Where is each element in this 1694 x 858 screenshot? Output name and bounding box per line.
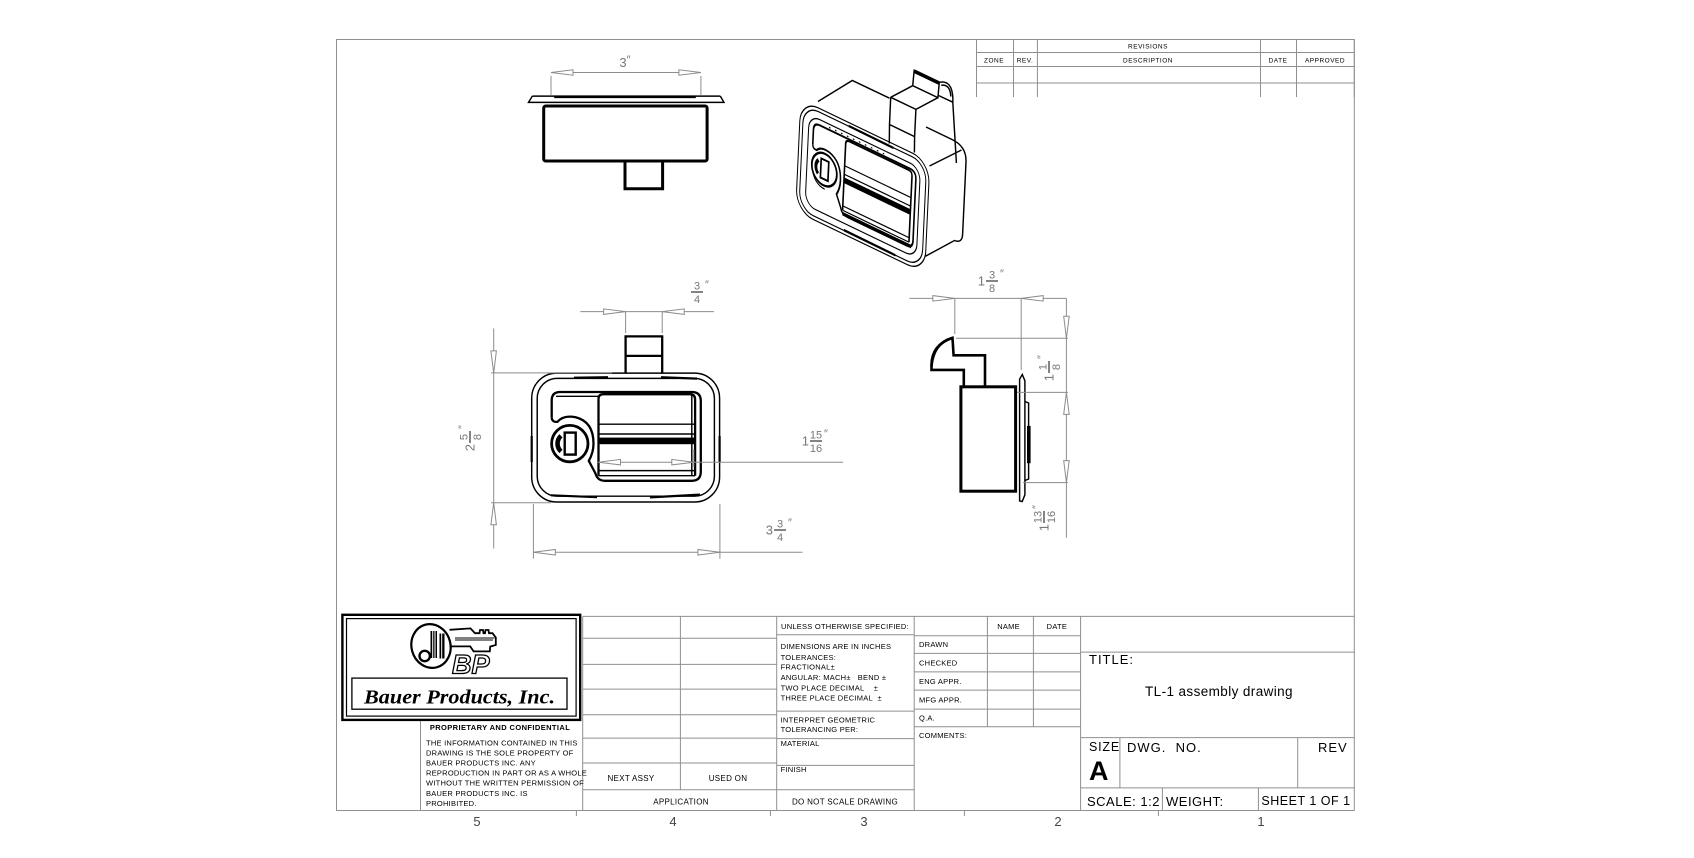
- svg-text:REV.: REV.: [1017, 58, 1034, 65]
- svg-text:1: 1: [802, 434, 809, 449]
- svg-text:FRACTIONAL±: FRACTIONAL±: [781, 663, 835, 672]
- svg-text:PROHIBITED.: PROHIBITED.: [426, 799, 477, 808]
- svg-text:SCALE: 1:2: SCALE: 1:2: [1087, 794, 1160, 809]
- svg-text:″: ″: [824, 428, 828, 440]
- svg-text:3: 3: [766, 523, 773, 538]
- svg-text:SIZE: SIZE: [1089, 740, 1120, 754]
- svg-text:8: 8: [472, 434, 484, 440]
- svg-text:THREE PLACE DECIMAL ±: THREE PLACE DECIMAL ±: [781, 694, 882, 703]
- svg-text:WITHOUT THE WRITTEN PERMISSION: WITHOUT THE WRITTEN PERMISSION OF: [426, 779, 584, 788]
- svg-text:1: 1: [1037, 524, 1052, 531]
- svg-text:″: ″: [788, 517, 792, 529]
- svg-text:WEIGHT:: WEIGHT:: [1166, 794, 1224, 809]
- svg-text:CHECKED: CHECKED: [919, 659, 958, 668]
- svg-text:8: 8: [989, 283, 995, 295]
- svg-text:ANGULAR: MACH± BEND ±: ANGULAR: MACH± BEND ±: [781, 673, 887, 682]
- svg-text:16: 16: [810, 443, 822, 455]
- svg-text:4: 4: [777, 532, 783, 544]
- svg-text:DWG. NO.: DWG. NO.: [1127, 740, 1202, 755]
- svg-text:15: 15: [810, 430, 822, 442]
- svg-text:3: 3: [694, 281, 700, 293]
- svg-text:TOLERANCING PER:: TOLERANCING PER:: [781, 725, 859, 734]
- svg-text:Q.A.: Q.A.: [919, 714, 935, 723]
- svg-text:5: 5: [473, 814, 480, 829]
- svg-text:TITLE:: TITLE:: [1089, 652, 1134, 667]
- svg-text:″: ″: [457, 425, 469, 429]
- svg-text:REV: REV: [1318, 740, 1348, 755]
- svg-text:DRAWING IS THE SOLE PROPERTY O: DRAWING IS THE SOLE PROPERTY OF: [426, 749, 574, 758]
- svg-text:2: 2: [463, 444, 478, 451]
- svg-text:MFG APPR.: MFG APPR.: [919, 696, 962, 705]
- svg-text:3: 3: [777, 519, 783, 531]
- svg-text:8: 8: [1051, 364, 1063, 370]
- svg-text:DRAWN: DRAWN: [919, 640, 948, 649]
- svg-text:16: 16: [1046, 511, 1058, 523]
- svg-text:BP: BP: [452, 650, 490, 680]
- svg-text:UNLESS OTHERWISE SPECIFIED:: UNLESS OTHERWISE SPECIFIED:: [781, 622, 909, 631]
- svg-text:1: 1: [978, 274, 985, 289]
- svg-text:″: ″: [1031, 505, 1043, 509]
- svg-text:NAME: NAME: [997, 622, 1020, 631]
- svg-text:USED ON: USED ON: [709, 774, 748, 783]
- svg-text:PROPRIETARY AND CONFIDENTIAL: PROPRIETARY AND CONFIDENTIAL: [430, 723, 570, 732]
- svg-text:3: 3: [860, 814, 867, 829]
- svg-text:MATERIAL: MATERIAL: [781, 739, 820, 748]
- svg-text:ENG APPR.: ENG APPR.: [919, 677, 962, 686]
- svg-text:COMMENTS:: COMMENTS:: [919, 731, 967, 740]
- svg-text:FINISH: FINISH: [781, 765, 807, 774]
- svg-text:DO NOT SCALE DRAWING: DO NOT SCALE DRAWING: [792, 798, 898, 807]
- svg-text:Bauer Products, Inc.: Bauer Products, Inc.: [363, 687, 555, 709]
- svg-text:DESCRIPTION: DESCRIPTION: [1123, 58, 1173, 65]
- svg-text:13: 13: [1033, 511, 1045, 523]
- svg-text:DATE: DATE: [1047, 622, 1067, 631]
- svg-text:DIMENSIONS ARE IN INCHES: DIMENSIONS ARE IN INCHES: [781, 642, 892, 651]
- svg-text:ZONE: ZONE: [984, 58, 1004, 65]
- svg-text:″: ″: [1000, 268, 1004, 280]
- svg-text:SHEET 1 OF 1: SHEET 1 OF 1: [1261, 794, 1350, 808]
- svg-text:REVISIONS: REVISIONS: [1128, 44, 1168, 51]
- svg-text:2: 2: [1054, 814, 1061, 829]
- svg-text:NEXT ASSY: NEXT ASSY: [607, 774, 654, 783]
- svg-text:A: A: [1089, 756, 1109, 786]
- svg-text:1: 1: [1038, 364, 1050, 370]
- svg-text:TL-1 assembly drawing: TL-1 assembly drawing: [1145, 684, 1293, 699]
- svg-text:1: 1: [1257, 814, 1264, 829]
- svg-text:1: 1: [1042, 374, 1057, 381]
- svg-text:TOLERANCES:: TOLERANCES:: [781, 653, 837, 662]
- svg-text:TWO PLACE DECIMAL ±: TWO PLACE DECIMAL ±: [781, 683, 879, 692]
- svg-text:APPLICATION: APPLICATION: [653, 798, 709, 807]
- svg-text:4: 4: [694, 294, 700, 306]
- svg-text:BAUER PRODUCTS INC. IS: BAUER PRODUCTS INC. IS: [426, 789, 528, 798]
- svg-text:BAUER PRODUCTS INC. ANY: BAUER PRODUCTS INC. ANY: [426, 759, 536, 768]
- svg-text:DATE: DATE: [1269, 58, 1288, 65]
- svg-text:4: 4: [669, 814, 676, 829]
- svg-text:″: ″: [1036, 355, 1048, 359]
- svg-text:3: 3: [989, 270, 995, 282]
- svg-text:5: 5: [459, 434, 471, 440]
- svg-text:REPRODUCTION IN PART OR AS A W: REPRODUCTION IN PART OR AS A WHOLE: [426, 769, 587, 778]
- svg-text:″: ″: [705, 279, 709, 291]
- svg-text:THE INFORMATION CONTAINED IN T: THE INFORMATION CONTAINED IN THIS: [426, 739, 578, 748]
- svg-text:INTERPRET GEOMETRIC: INTERPRET GEOMETRIC: [781, 716, 876, 725]
- svg-text:APPROVED: APPROVED: [1305, 58, 1345, 65]
